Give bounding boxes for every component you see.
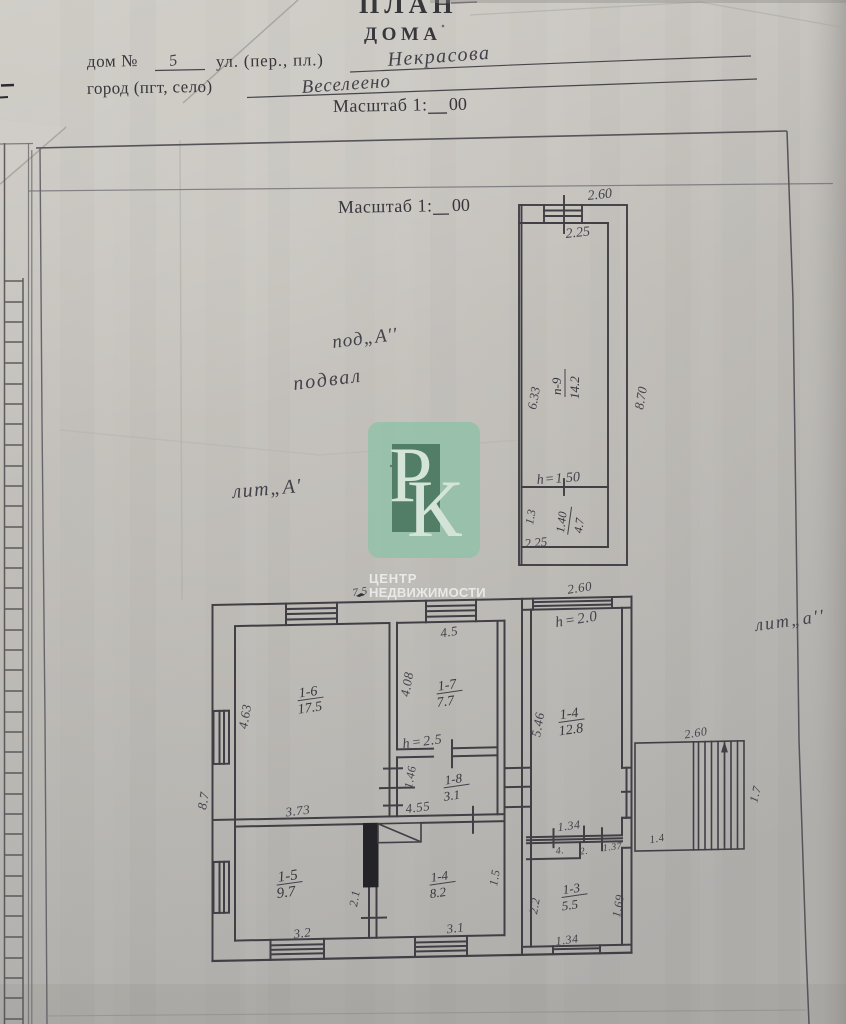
svg-text:2.1: 2.1 xyxy=(346,889,363,907)
svg-text:8.7: 8.7 xyxy=(194,791,212,811)
svg-text:3.73: 3.73 xyxy=(284,802,311,820)
svg-text:3.1: 3.1 xyxy=(442,787,461,804)
svg-text:3.1: 3.1 xyxy=(445,919,465,936)
svg-text:1.3: 1.3 xyxy=(522,508,538,525)
svg-text:5.5: 5.5 xyxy=(561,896,579,913)
svg-text:2.: 2. xyxy=(579,846,589,858)
svg-text:1.4: 1.4 xyxy=(649,832,666,846)
svg-text:город (пгт, село): город (пгт, село) xyxy=(87,77,213,98)
svg-text:7.7: 7.7 xyxy=(436,693,456,710)
svg-text:Масштаб 1:: Масштаб 1: xyxy=(338,195,433,217)
svg-text:4.7: 4.7 xyxy=(571,516,587,534)
svg-text:1.5: 1.5 xyxy=(486,868,503,886)
svg-text:4.5: 4.5 xyxy=(439,623,459,641)
svg-text:2.25: 2.25 xyxy=(524,534,549,551)
svg-text:9.7: 9.7 xyxy=(276,883,298,902)
svg-text:дом №: дом № xyxy=(87,51,138,71)
svg-text:п-9: п-9 xyxy=(549,377,564,395)
svg-text:НЕДВИЖИМОСТИ: НЕДВИЖИМОСТИ xyxy=(369,585,486,600)
svg-text:14.2: 14.2 xyxy=(567,376,582,399)
svg-text:1.34: 1.34 xyxy=(557,817,581,834)
svg-text:ул. (пер., пл.): ул. (пер., пл.) xyxy=(216,50,324,71)
svg-text:ЦЕНТР: ЦЕНТР xyxy=(369,571,417,586)
svg-text:1.40: 1.40 xyxy=(553,511,570,534)
svg-text:Масштаб 1:: Масштаб 1: xyxy=(333,94,428,116)
svg-text:К: К xyxy=(407,463,462,554)
svg-text:2.2: 2.2 xyxy=(526,897,543,915)
svg-text:4.: 4. xyxy=(555,845,565,857)
svg-text:4.55: 4.55 xyxy=(405,798,431,816)
svg-text:00: 00 xyxy=(449,94,467,114)
svg-text:1.34: 1.34 xyxy=(555,931,579,948)
svg-text:ДОМА: ДОМА xyxy=(364,24,442,45)
svg-text:3.2: 3.2 xyxy=(292,924,312,941)
svg-text:00: 00 xyxy=(452,195,470,215)
svg-text:7,5: 7,5 xyxy=(352,585,369,599)
svg-text:h = 1.50: h = 1.50 xyxy=(536,470,580,488)
svg-text:2.25: 2.25 xyxy=(565,224,591,241)
svg-text:2.60: 2.60 xyxy=(587,186,613,203)
svg-text:8.2: 8.2 xyxy=(429,884,447,901)
